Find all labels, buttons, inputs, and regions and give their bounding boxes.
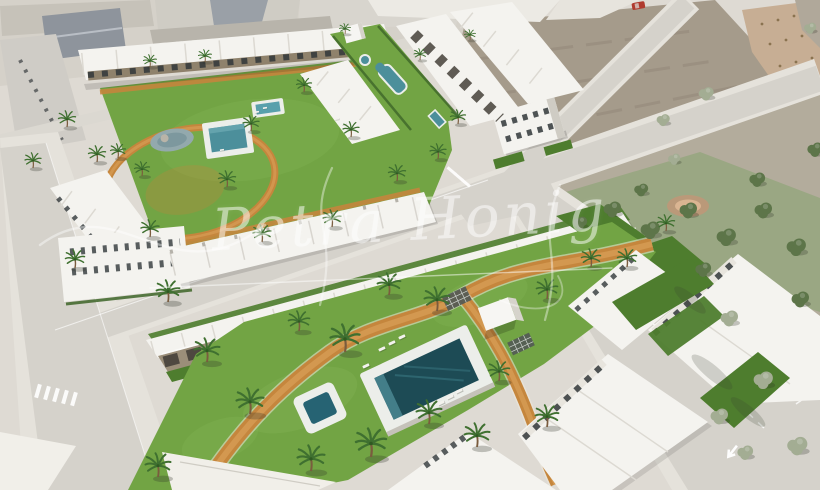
pool-main-a	[202, 117, 255, 159]
strip-round-pool	[360, 55, 370, 65]
aerial-render: Petra Honig	[0, 0, 820, 490]
scene-svg	[0, 0, 820, 490]
